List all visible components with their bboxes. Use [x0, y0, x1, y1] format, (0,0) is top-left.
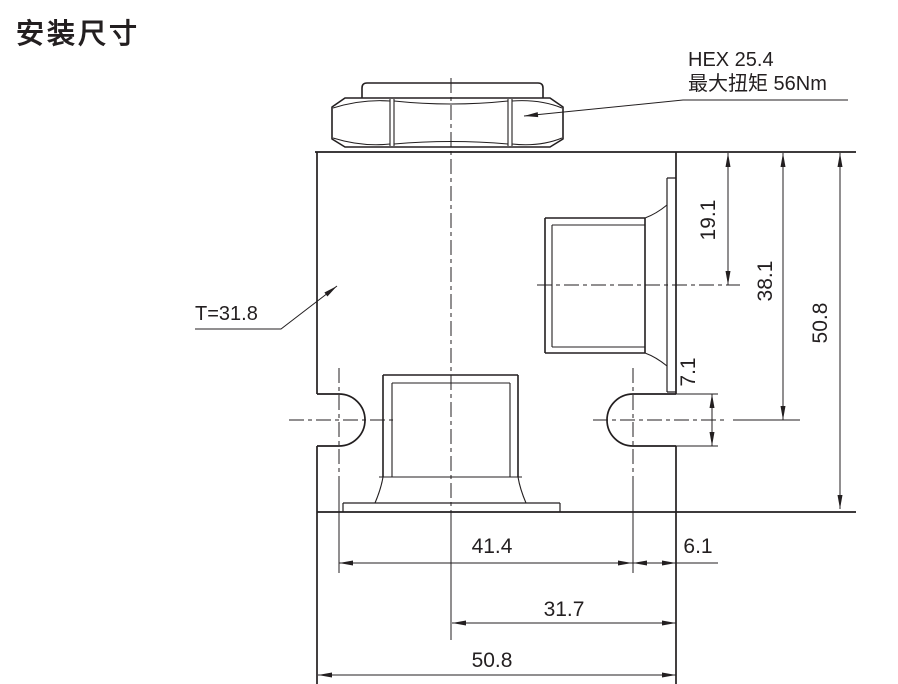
arrow-up-7-1	[710, 394, 715, 408]
hex-callout-line2: 最大扭矩 56Nm	[688, 72, 827, 96]
drawing	[0, 0, 898, 684]
dimension-lines	[195, 100, 848, 675]
hex-facet-arcs	[333, 101, 562, 145]
arrow-leader-thickness	[324, 286, 337, 297]
arrow-left-6-1	[633, 561, 647, 566]
dim-label-19-1: 19.1	[697, 200, 721, 241]
arrow-up-19-1	[726, 153, 731, 167]
dim-label-6-1: 6.1	[683, 535, 712, 559]
arrow-left-41-4	[339, 561, 353, 566]
arrow-right-41-4	[618, 561, 632, 566]
arrow-right-6-1	[662, 561, 676, 566]
hex-callout: HEX 25.4 最大扭矩 56Nm	[688, 48, 827, 96]
hex-nut-outline	[332, 98, 563, 147]
hex-cap	[362, 83, 543, 98]
leader-line-hex	[524, 100, 848, 116]
arrow-up-50-8	[838, 153, 843, 167]
arrow-left-31-7	[452, 621, 466, 626]
arrow-down-19-1	[726, 271, 731, 285]
body-outline	[315, 152, 856, 684]
dim-label-38-1: 38.1	[754, 261, 778, 302]
arrow-right-31-7	[662, 621, 676, 626]
arrow-left-50-8-bottom	[318, 673, 332, 678]
dim-label-50-8-right: 50.8	[809, 303, 833, 344]
arrow-down-7-1	[710, 432, 715, 446]
dim-label-7-1: 7.1	[677, 357, 701, 386]
arrow-up-38-1	[781, 153, 786, 167]
hex-callout-line1: HEX 25.4	[688, 48, 827, 72]
thickness-callout: T=31.8	[195, 302, 258, 326]
technical-drawing-page: 安装尺寸 HEX 25.4 最大扭矩 56Nm T=31.8 19.1 38.1…	[0, 0, 898, 684]
arrow-down-38-1	[781, 406, 786, 420]
dim-label-31-7: 31.7	[544, 598, 585, 622]
dim-label-41-4: 41.4	[472, 535, 513, 559]
arrow-right-50-8-bottom	[662, 673, 676, 678]
side-port-inner	[552, 225, 645, 347]
arrow-down-50-8	[838, 495, 843, 509]
page-title: 安装尺寸	[16, 12, 140, 52]
arrow-leader-hex	[524, 112, 538, 117]
dim-label-50-8-bottom: 50.8	[472, 649, 513, 673]
arrowheads	[318, 112, 843, 677]
